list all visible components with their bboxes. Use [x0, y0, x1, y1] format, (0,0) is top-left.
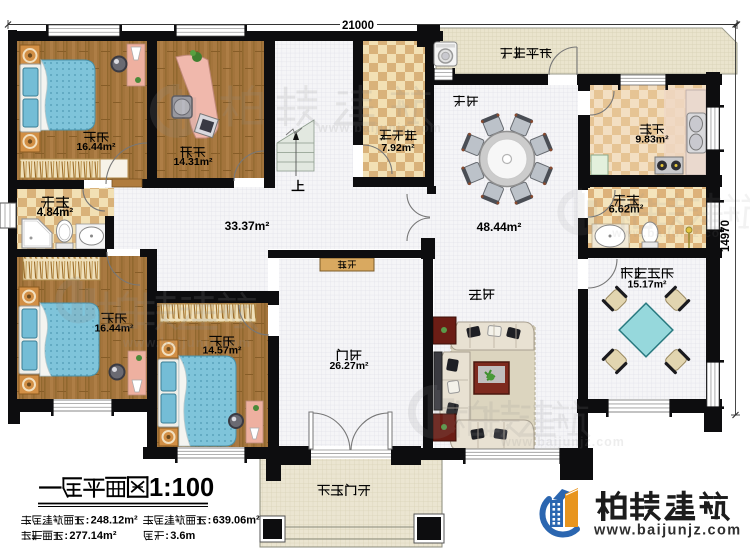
svg-text::: : [86, 515, 90, 527]
svg-text:639.06m²: 639.06m² [213, 515, 260, 527]
svg-text:www.baijunjz.com: www.baijunjz.com [593, 523, 742, 539]
svg-text:16.44m²: 16.44m² [76, 141, 116, 153]
svg-text::: : [165, 530, 169, 542]
svg-text:33.37m²: 33.37m² [225, 219, 270, 233]
svg-text::: : [64, 530, 68, 542]
svg-text:1:100: 1:100 [149, 474, 214, 502]
svg-text:248.12m²: 248.12m² [91, 515, 138, 527]
svg-text:26.27m²: 26.27m² [329, 360, 369, 372]
svg-text:48.44m²: 48.44m² [477, 220, 522, 234]
svg-text:7.92m²: 7.92m² [381, 142, 415, 154]
svg-text:www.baijunjz.com: www.baijunjz.com [611, 226, 732, 240]
svg-text:21000: 21000 [342, 20, 374, 32]
svg-text:4.84m²: 4.84m² [37, 207, 74, 219]
svg-text:www.baijunjz.com: www.baijunjz.com [122, 335, 251, 350]
svg-text:3.6m: 3.6m [170, 530, 195, 542]
svg-text:14.31m²: 14.31m² [173, 156, 213, 168]
svg-text:277.14m²: 277.14m² [69, 530, 116, 542]
svg-text::: : [208, 515, 212, 527]
svg-text:www.baijunjz.com: www.baijunjz.com [500, 435, 625, 449]
svg-text:www.baijunjz.com: www.baijunjz.com [317, 121, 442, 135]
svg-text:15.17m²: 15.17m² [627, 279, 667, 291]
svg-text:9.83m²: 9.83m² [635, 134, 669, 146]
svg-text:14970: 14970 [720, 220, 732, 252]
